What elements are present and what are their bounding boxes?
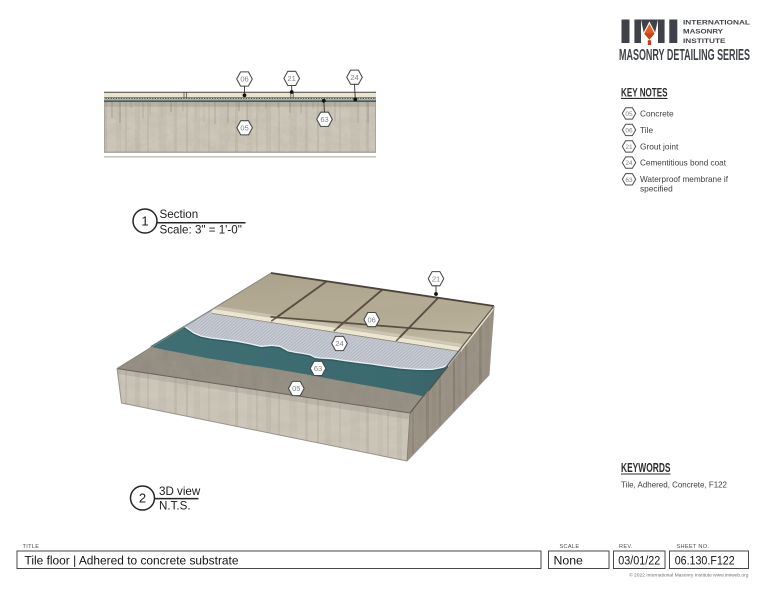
svg-text:© 2022 International Masonry I: © 2022 International Masonry Institute w…	[629, 572, 749, 579]
svg-text:Tile, Adhered, Concrete, F122: Tile, Adhered, Concrete, F122	[621, 479, 727, 489]
svg-text:TITLE: TITLE	[23, 544, 40, 550]
svg-text:Scale: 3" = 1'-0": Scale: 3" = 1'-0"	[160, 224, 242, 237]
svg-text:2: 2	[139, 491, 146, 506]
svg-text:06.130.F122: 06.130.F122	[675, 553, 735, 567]
svg-text:None: None	[554, 554, 584, 568]
svg-text:MASONRY DETAILING SERIES: MASONRY DETAILING SERIES	[619, 47, 750, 64]
svg-text:05: 05	[292, 384, 300, 393]
svg-text:specified: specified	[640, 184, 673, 194]
svg-text:KEYWORDS: KEYWORDS	[621, 460, 671, 475]
svg-text:MASONRY: MASONRY	[683, 29, 724, 36]
svg-text:21: 21	[432, 274, 440, 283]
svg-text:Tile: Tile	[640, 125, 653, 135]
svg-text:63: 63	[625, 177, 633, 184]
svg-text:63: 63	[314, 364, 322, 373]
svg-text:Cementitious bond coat: Cementitious bond coat	[640, 158, 727, 168]
svg-text:21: 21	[288, 74, 296, 83]
svg-text:21: 21	[625, 144, 633, 151]
svg-text:Section: Section	[160, 208, 199, 221]
svg-text:3D view: 3D view	[159, 485, 201, 498]
svg-text:KEY NOTES: KEY NOTES	[621, 85, 668, 99]
svg-text:03/01/22: 03/01/22	[618, 554, 660, 568]
svg-text:INTERNATIONAL: INTERNATIONAL	[683, 19, 750, 26]
svg-text:N.T.S.: N.T.S.	[159, 500, 191, 513]
svg-text:06: 06	[625, 127, 633, 134]
svg-text:Grout joint: Grout joint	[640, 141, 679, 151]
svg-text:24: 24	[625, 160, 633, 167]
svg-text:05: 05	[240, 124, 248, 133]
svg-text:Tile floor | Adhered to concre: Tile floor | Adhered to concrete substra…	[25, 553, 239, 567]
svg-text:SHEET NO.: SHEET NO.	[677, 544, 710, 550]
svg-text:06: 06	[368, 315, 376, 324]
svg-text:05: 05	[625, 111, 633, 118]
svg-text:Waterproof membrane if: Waterproof membrane if	[640, 174, 729, 184]
svg-text:24: 24	[350, 73, 358, 82]
svg-text:24: 24	[335, 339, 343, 348]
svg-text:1: 1	[141, 214, 148, 229]
svg-text:SCALE: SCALE	[560, 544, 580, 550]
svg-text:63: 63	[320, 115, 328, 124]
svg-text:REV.: REV.	[619, 544, 633, 550]
svg-text:Concrete: Concrete	[640, 108, 674, 118]
svg-text:INSTITUTE: INSTITUTE	[683, 38, 726, 45]
svg-text:06: 06	[240, 75, 248, 84]
